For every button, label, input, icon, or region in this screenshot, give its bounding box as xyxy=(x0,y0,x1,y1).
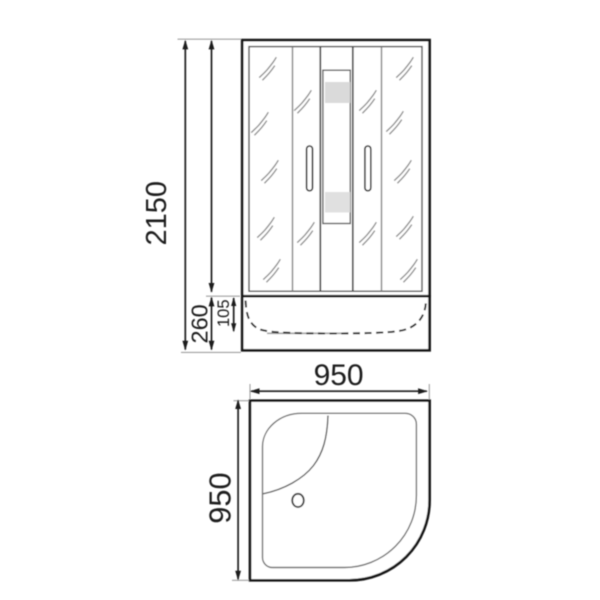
svg-text:2150: 2150 xyxy=(141,181,173,246)
svg-text:950: 950 xyxy=(314,359,364,392)
svg-text:260: 260 xyxy=(187,304,213,343)
svg-text:950: 950 xyxy=(203,472,238,523)
svg-text:105: 105 xyxy=(215,299,233,327)
